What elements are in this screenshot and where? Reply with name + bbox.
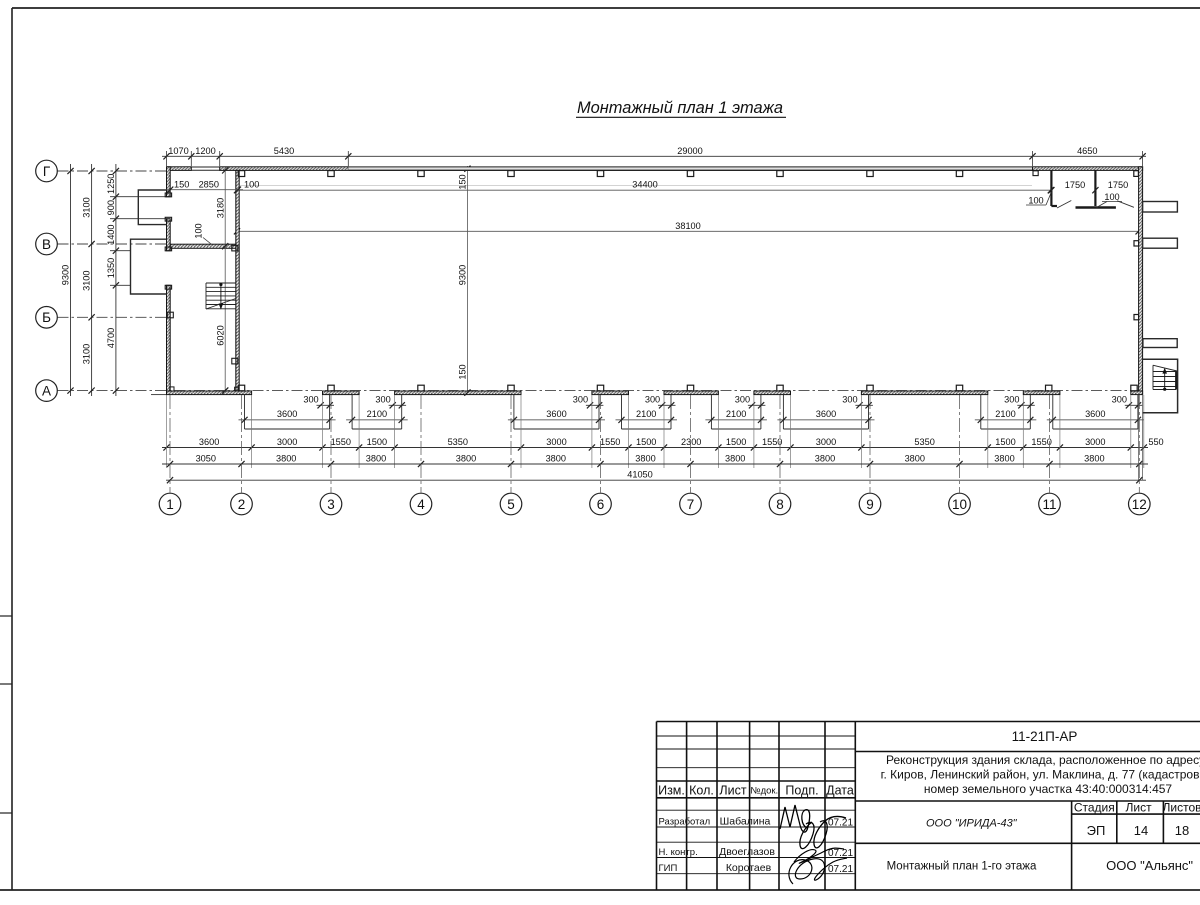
svg-text:3100: 3100 xyxy=(82,270,92,290)
svg-text:2100: 2100 xyxy=(995,409,1015,419)
svg-text:3600: 3600 xyxy=(816,409,836,419)
svg-text:29000: 29000 xyxy=(677,146,703,156)
svg-text:5350: 5350 xyxy=(914,437,934,447)
svg-text:Дата: Дата xyxy=(826,783,854,797)
svg-text:1550: 1550 xyxy=(1031,437,1051,447)
svg-text:3600: 3600 xyxy=(199,437,219,447)
svg-text:34400: 34400 xyxy=(632,180,658,190)
svg-text:2100: 2100 xyxy=(726,409,746,419)
svg-text:07.21: 07.21 xyxy=(828,864,853,875)
svg-text:Б: Б xyxy=(42,310,51,325)
svg-text:6020: 6020 xyxy=(215,325,225,345)
svg-text:2850: 2850 xyxy=(199,180,219,190)
svg-text:1500: 1500 xyxy=(726,437,746,447)
svg-text:1500: 1500 xyxy=(636,437,656,447)
svg-text:38100: 38100 xyxy=(675,221,701,231)
svg-text:Шабалина: Шабалина xyxy=(720,816,771,828)
svg-text:Монтажный план 1 этажа: Монтажный план 1 этажа xyxy=(577,99,783,117)
svg-text:3800: 3800 xyxy=(905,454,925,464)
svg-text:2300: 2300 xyxy=(681,437,701,447)
svg-text:3800: 3800 xyxy=(725,454,745,464)
svg-text:Стадия: Стадия xyxy=(1074,801,1115,815)
svg-text:2100: 2100 xyxy=(636,409,656,419)
svg-text:14: 14 xyxy=(1134,823,1148,838)
svg-text:300: 300 xyxy=(842,395,857,405)
svg-text:3000: 3000 xyxy=(277,437,297,447)
svg-text:9300: 9300 xyxy=(61,265,71,285)
svg-text:9: 9 xyxy=(866,497,874,512)
svg-text:150: 150 xyxy=(174,180,189,190)
svg-text:11-21П-АР: 11-21П-АР xyxy=(1012,729,1078,744)
svg-text:150: 150 xyxy=(457,364,467,379)
svg-text:3100: 3100 xyxy=(82,344,92,364)
svg-text:300: 300 xyxy=(1112,395,1127,405)
svg-text:3800: 3800 xyxy=(635,454,655,464)
svg-text:1500: 1500 xyxy=(367,437,387,447)
svg-text:3800: 3800 xyxy=(815,454,835,464)
svg-text:300: 300 xyxy=(735,395,750,405)
svg-text:3600: 3600 xyxy=(277,409,297,419)
svg-text:Г: Г xyxy=(43,164,51,179)
svg-text:№док.: №док. xyxy=(750,786,778,797)
svg-text:3600: 3600 xyxy=(1085,409,1105,419)
svg-text:1070: 1070 xyxy=(168,146,188,156)
svg-text:3800: 3800 xyxy=(276,454,296,464)
svg-text:5430: 5430 xyxy=(274,146,294,156)
svg-text:ООО "Альянс": ООО "Альянс" xyxy=(1106,858,1193,873)
svg-text:3000: 3000 xyxy=(816,437,836,447)
svg-text:8: 8 xyxy=(776,497,784,512)
svg-text:ООО "ИРИДА-43": ООО "ИРИДА-43" xyxy=(926,817,1018,829)
svg-text:3000: 3000 xyxy=(1085,437,1105,447)
svg-text:4650: 4650 xyxy=(1077,146,1097,156)
svg-text:3050: 3050 xyxy=(196,454,216,464)
svg-text:ЭП: ЭП xyxy=(1087,823,1106,838)
svg-text:3180: 3180 xyxy=(215,198,225,218)
svg-text:1750: 1750 xyxy=(1065,180,1085,190)
svg-text:Лист: Лист xyxy=(719,783,746,797)
svg-text:3: 3 xyxy=(327,497,335,512)
svg-text:3800: 3800 xyxy=(366,454,386,464)
svg-text:1350: 1350 xyxy=(106,258,116,278)
svg-text:Коротаев: Коротаев xyxy=(726,862,772,874)
svg-text:100: 100 xyxy=(194,223,204,238)
svg-text:41050: 41050 xyxy=(627,470,653,480)
svg-text:г. Киров, Ленинский район, ул.: г. Киров, Ленинский район, ул. Маклина, … xyxy=(881,768,1200,782)
svg-text:3800: 3800 xyxy=(994,454,1014,464)
svg-text:300: 300 xyxy=(1004,395,1019,405)
svg-text:300: 300 xyxy=(303,395,318,405)
svg-text:Подп.: Подп. xyxy=(785,783,818,797)
svg-text:100: 100 xyxy=(1104,192,1119,202)
svg-text:ГИП: ГИП xyxy=(659,863,678,874)
svg-text:номер земельного участка 43:40: номер земельного участка 43:40:000314:45… xyxy=(924,782,1173,796)
svg-text:4700: 4700 xyxy=(106,328,116,348)
svg-text:Двоеглазов: Двоеглазов xyxy=(719,846,775,858)
svg-text:1500: 1500 xyxy=(995,437,1015,447)
svg-text:3800: 3800 xyxy=(546,454,566,464)
svg-text:Листов: Листов xyxy=(1163,801,1200,815)
svg-text:300: 300 xyxy=(645,395,660,405)
svg-text:12: 12 xyxy=(1132,497,1147,512)
svg-text:300: 300 xyxy=(375,395,390,405)
svg-text:Изм.: Изм. xyxy=(658,783,685,797)
svg-text:А: А xyxy=(42,384,51,399)
svg-text:10: 10 xyxy=(952,497,967,512)
svg-text:2100: 2100 xyxy=(367,409,387,419)
svg-text:3800: 3800 xyxy=(1084,454,1104,464)
svg-text:11: 11 xyxy=(1042,497,1056,512)
svg-text:1200: 1200 xyxy=(195,146,215,156)
svg-text:3600: 3600 xyxy=(546,409,566,419)
svg-text:2: 2 xyxy=(238,497,246,512)
svg-text:3800: 3800 xyxy=(456,454,476,464)
svg-text:18: 18 xyxy=(1175,823,1189,838)
svg-text:Н. контр.: Н. контр. xyxy=(659,847,698,858)
svg-text:7: 7 xyxy=(687,497,695,512)
svg-text:Реконструкция здания склада, р: Реконструкция здания склада, расположенн… xyxy=(886,753,1200,767)
svg-text:1550: 1550 xyxy=(600,437,620,447)
svg-text:07.21: 07.21 xyxy=(828,848,853,859)
svg-text:5: 5 xyxy=(507,497,515,512)
svg-text:4: 4 xyxy=(417,497,425,512)
svg-text:300: 300 xyxy=(573,395,588,405)
svg-text:Кол.: Кол. xyxy=(689,783,714,797)
svg-text:6: 6 xyxy=(597,497,605,512)
svg-text:100: 100 xyxy=(1028,195,1043,205)
svg-text:3000: 3000 xyxy=(546,437,566,447)
svg-text:1: 1 xyxy=(166,497,174,512)
svg-text:1550: 1550 xyxy=(762,437,782,447)
svg-text:9300: 9300 xyxy=(457,265,467,285)
svg-text:Монтажный план 1-го этажа: Монтажный план 1-го этажа xyxy=(887,860,1037,872)
svg-text:В: В xyxy=(42,237,51,252)
svg-text:100: 100 xyxy=(244,180,259,190)
svg-text:Лист: Лист xyxy=(1126,801,1153,815)
svg-text:1550: 1550 xyxy=(331,437,351,447)
svg-text:3100: 3100 xyxy=(82,197,92,217)
svg-text:150: 150 xyxy=(457,174,467,189)
svg-text:900: 900 xyxy=(106,200,116,215)
svg-text:1400: 1400 xyxy=(106,224,116,244)
svg-text:07.21: 07.21 xyxy=(828,818,853,829)
svg-text:1750: 1750 xyxy=(1108,180,1128,190)
svg-text:Разработал: Разработал xyxy=(659,817,711,828)
svg-text:550: 550 xyxy=(1148,437,1163,447)
svg-text:5350: 5350 xyxy=(448,437,468,447)
svg-text:1250: 1250 xyxy=(106,174,116,194)
